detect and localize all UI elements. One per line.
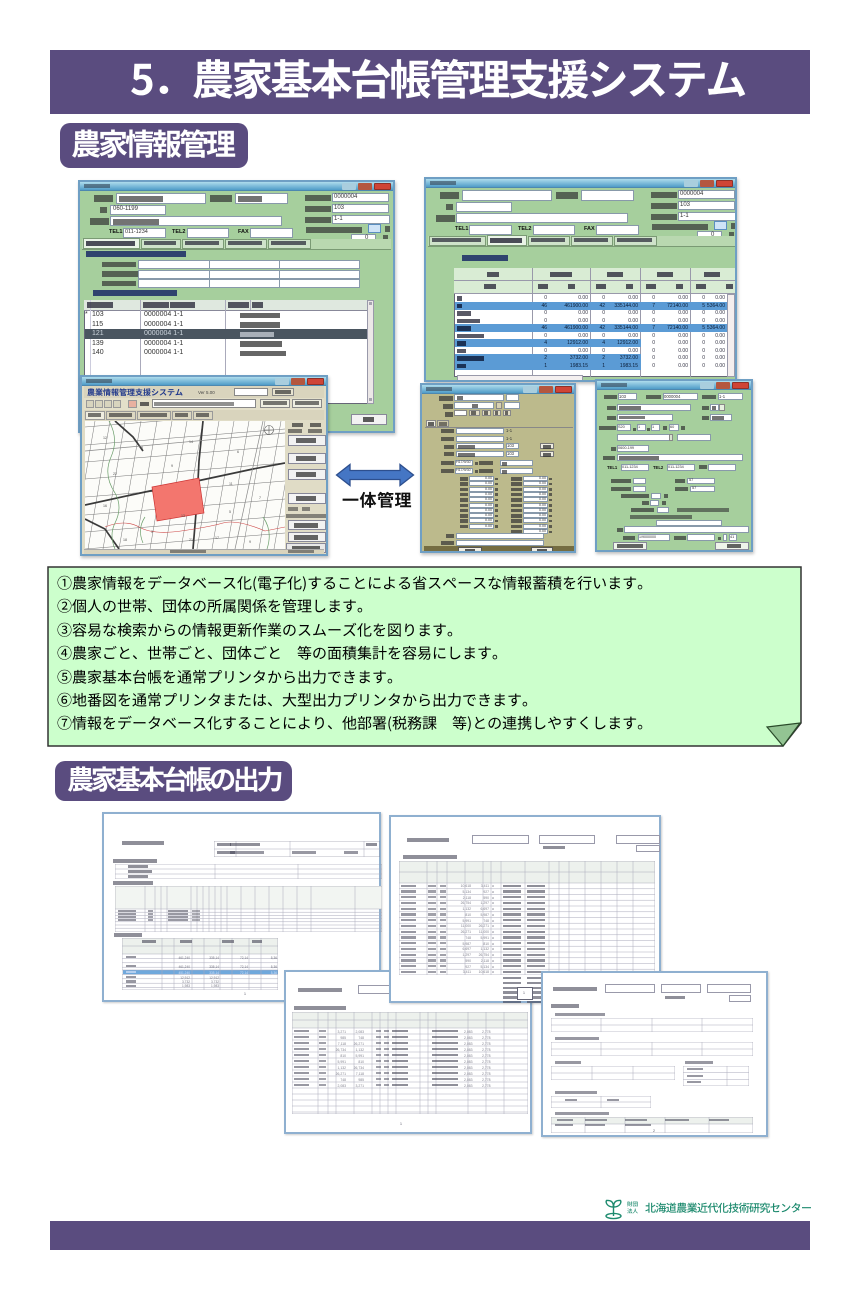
svg-text:21: 21: [189, 538, 193, 542]
svg-text:7: 7: [259, 496, 261, 500]
svg-text:17: 17: [215, 536, 219, 540]
svg-text:16: 16: [103, 504, 107, 508]
svg-text:12: 12: [103, 436, 107, 440]
svg-text:22: 22: [113, 472, 117, 476]
svg-text:5: 5: [229, 510, 231, 514]
svg-text:9: 9: [171, 464, 173, 468]
svg-text:9: 9: [249, 540, 251, 544]
svg-text:14: 14: [189, 440, 193, 444]
svg-text:11: 11: [229, 482, 233, 486]
svg-text:8: 8: [141, 446, 143, 450]
svg-text:6: 6: [237, 450, 239, 454]
svg-text:3: 3: [151, 530, 153, 534]
svg-text:18: 18: [123, 538, 127, 542]
svg-text:13: 13: [181, 514, 185, 518]
